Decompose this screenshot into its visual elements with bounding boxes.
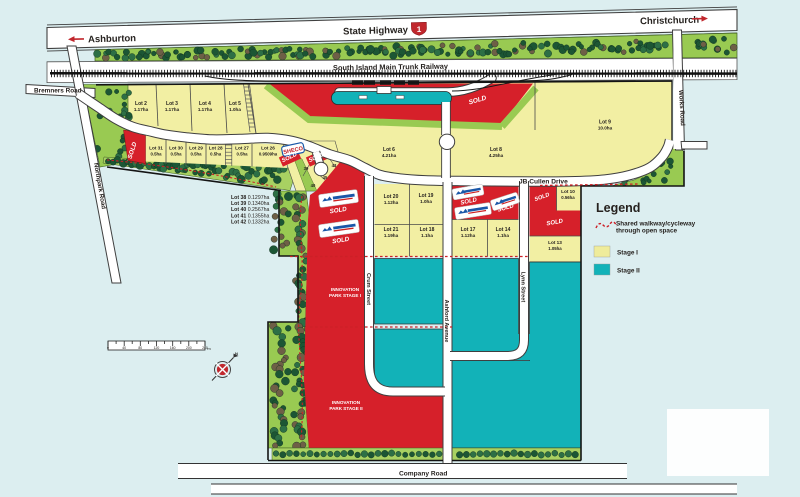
svg-text:0.5ha: 0.5ha <box>210 151 222 156</box>
svg-text:Lot 30: Lot 30 <box>169 146 183 151</box>
svg-text:40: 40 <box>122 346 126 350</box>
svg-text:1.12ha: 1.12ha <box>461 233 476 238</box>
svg-text:Lot 42 0.1332ha: Lot 42 0.1332ha <box>231 219 269 225</box>
svg-text:through open space: through open space <box>616 228 678 235</box>
svg-text:Company Road: Company Road <box>399 471 447 478</box>
svg-text:0.9509ha: 0.9509ha <box>259 151 278 156</box>
svg-text:1: 1 <box>417 25 422 34</box>
svg-text:1.0ha: 1.0ha <box>420 199 432 204</box>
svg-text:4.21ha: 4.21ha <box>382 153 397 158</box>
svg-text:1.17ha: 1.17ha <box>134 107 149 112</box>
svg-text:Lot 29: Lot 29 <box>189 146 203 151</box>
svg-text:Lot 10: Lot 10 <box>561 189 575 194</box>
svg-text:0.5ha: 0.5ha <box>170 151 182 156</box>
svg-text:Lot 31: Lot 31 <box>149 146 163 151</box>
svg-text:Christchurch: Christchurch <box>640 15 700 28</box>
svg-text:80: 80 <box>138 346 142 350</box>
svg-text:INNOVATION: INNOVATION <box>332 400 361 405</box>
svg-text:State Highway: State Highway <box>343 25 409 38</box>
svg-text:200: 200 <box>186 346 192 350</box>
svg-text:1.1ha: 1.1ha <box>497 233 509 238</box>
svg-text:Bremners Road: Bremners Road <box>34 88 82 95</box>
svg-text:Shared walkway/cycleway: Shared walkway/cycleway <box>616 221 696 228</box>
svg-text:N: N <box>235 351 238 356</box>
svg-text:Lot 13: Lot 13 <box>548 240 562 245</box>
svg-text:Lot 41 0.1355ha: Lot 41 0.1355ha <box>231 213 269 219</box>
svg-text:Lot 39 0.1340ha: Lot 39 0.1340ha <box>231 201 269 207</box>
svg-text:160: 160 <box>170 346 176 350</box>
svg-text:1.17ha: 1.17ha <box>165 107 180 112</box>
svg-text:40: 40 <box>311 183 316 188</box>
svg-text:1.0ha: 1.0ha <box>229 107 241 112</box>
svg-text:Lot 38 0.1297ha: Lot 38 0.1297ha <box>231 195 269 201</box>
svg-text:0.5ha: 0.5ha <box>190 151 202 156</box>
svg-text:10.0ha: 10.0ha <box>598 125 613 130</box>
svg-text:INNOVATION: INNOVATION <box>331 287 360 292</box>
svg-text:0.56ha: 0.56ha <box>561 195 575 200</box>
svg-text:0.5ha: 0.5ha <box>150 151 162 156</box>
svg-text:120: 120 <box>154 346 160 350</box>
svg-text:Lot 27: Lot 27 <box>235 146 249 151</box>
svg-text:1.19ha: 1.19ha <box>384 233 399 238</box>
svg-text:4.25ha: 4.25ha <box>489 153 504 158</box>
svg-text:Lot 28: Lot 28 <box>209 146 223 151</box>
svg-text:Crum Street: Crum Street <box>365 273 371 305</box>
svg-text:PARK STAGE I: PARK STAGE I <box>329 293 361 298</box>
svg-text:1.12ha: 1.12ha <box>384 200 399 205</box>
svg-text:45: 45 <box>323 175 328 180</box>
svg-text:Lot 26: Lot 26 <box>261 146 275 151</box>
svg-text:Lot 40 0.2567ha: Lot 40 0.2567ha <box>231 207 269 213</box>
svg-text:Ashburton: Ashburton <box>88 33 136 45</box>
svg-text:1.1ha: 1.1ha <box>421 233 433 238</box>
svg-text:39: 39 <box>304 166 309 171</box>
svg-text:South Island Main Trunk Railwa: South Island Main Trunk Railway <box>333 62 449 73</box>
svg-text:Ashford Avenue: Ashford Avenue <box>443 300 449 343</box>
svg-text:1.05ha: 1.05ha <box>548 246 562 251</box>
svg-text:0.5ha: 0.5ha <box>236 151 248 156</box>
svg-text:Lynn Street: Lynn Street <box>520 272 526 303</box>
svg-text:0: 0 <box>107 346 109 350</box>
svg-text:43: 43 <box>332 163 337 168</box>
svg-text:Stage II: Stage II <box>617 268 640 275</box>
svg-text:1.17ha: 1.17ha <box>198 107 213 112</box>
svg-text:Stage I: Stage I <box>617 250 638 257</box>
svg-text:JB Cullen Drive: JB Cullen Drive <box>519 179 568 186</box>
svg-text:PARK STAGE II: PARK STAGE II <box>329 406 362 411</box>
svg-text:Legend: Legend <box>596 201 640 215</box>
